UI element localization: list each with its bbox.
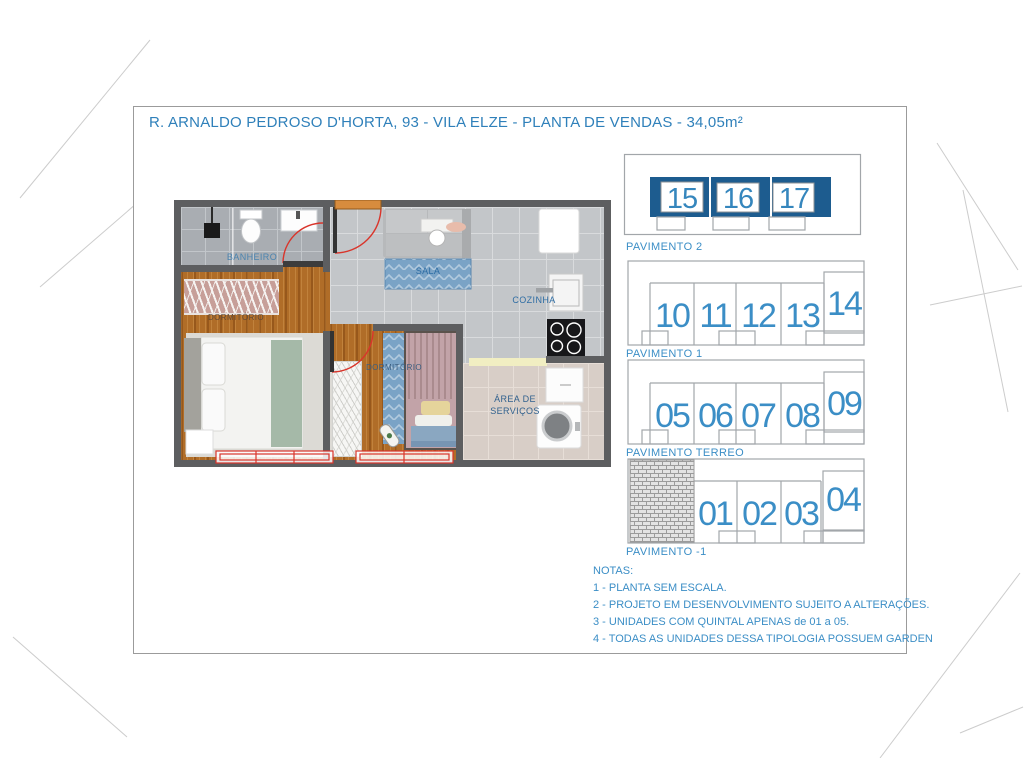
note-line: 3 - UNIDADES COM QUINTAL APENAS de 01 a … [593, 614, 933, 631]
unit-number: 05 [655, 397, 690, 435]
notes-block: NOTAS: 1 - PLANTA SEM ESCALA. 2 - PROJET… [593, 563, 933, 648]
plan-sheet: R. ARNALDO PEDROSO D'HORTA, 93 - VILA EL… [133, 106, 907, 654]
plan-openings [174, 200, 611, 467]
unit-number: 15 [667, 183, 697, 215]
floor-diagram-pavimento-1: 10 11 12 13 14 [624, 259, 866, 349]
room-label-banheiro: BANHEIRO [214, 252, 290, 262]
area-servicos-line1: ÁREA DE [484, 393, 546, 405]
unit-number: 09 [827, 385, 862, 423]
window-bedroom1 [216, 451, 333, 463]
unit-number: 13 [785, 297, 820, 335]
unit-number: 16 [723, 183, 753, 215]
unit-number: 08 [785, 397, 820, 435]
floor-diagram-pavimento-minus1: 01 02 03 04 [624, 457, 866, 547]
note-line: 2 - PROJETO EM DESENVOLVIMENTO SUJEITO A… [593, 597, 933, 614]
room-label-area-servicos: ÁREA DE SERVIÇOS [484, 393, 546, 417]
floor-diagram-pavimento-terreo: 05 06 07 08 09 [624, 358, 866, 448]
garden-hatch-area [630, 460, 694, 542]
note-line: 4 - TODAS AS UNIDADES DESSA TIPOLOGIA PO… [593, 631, 933, 648]
unit-number: 03 [784, 495, 819, 533]
room-label-dormitorio1: DORMITÓRIO [196, 313, 276, 322]
unit-number: 07 [741, 397, 776, 435]
room-label-cozinha: COZINHA [504, 295, 564, 305]
unit-number: 11 [699, 297, 731, 335]
page-canvas: R. ARNALDO PEDROSO D'HORTA, 93 - VILA EL… [0, 0, 1024, 758]
entry-door [335, 200, 381, 209]
window-bedroom2 [356, 451, 453, 463]
area-servicos-line2: SERVIÇOS [484, 405, 546, 417]
unit-number: 06 [698, 397, 733, 435]
room-label-sala: SALA [402, 266, 454, 276]
unit-number: 14 [827, 285, 862, 323]
door-leaf-entry [333, 207, 337, 253]
unit-number: 01 [698, 495, 733, 533]
unit-number: 17 [779, 183, 809, 215]
floor-label-pavimento-2: PAVIMENTO 2 [626, 241, 703, 253]
floor-diagram-pavimento-2: 15 16 17 [624, 153, 866, 243]
room-label-dormitorio2: DORMITÓRIO [354, 363, 434, 372]
floor-label-pavimento-minus1: PAVIMENTO -1 [626, 546, 707, 558]
notes-heading: NOTAS: [593, 563, 933, 580]
door-leaf-bedroom2 [330, 331, 334, 372]
page-title: R. ARNALDO PEDROSO D'HORTA, 93 - VILA EL… [149, 114, 743, 131]
unit-number: 04 [826, 481, 861, 519]
note-line: 1 - PLANTA SEM ESCALA. [593, 580, 933, 597]
door-swing-entry [335, 207, 381, 253]
floorplan: BANHEIRO DORMITÓRIO SALA COZINHA DORMITÓ… [174, 200, 611, 467]
unit-number: 10 [655, 297, 690, 335]
unit-number: 02 [742, 495, 777, 533]
unit-number: 12 [741, 297, 776, 335]
